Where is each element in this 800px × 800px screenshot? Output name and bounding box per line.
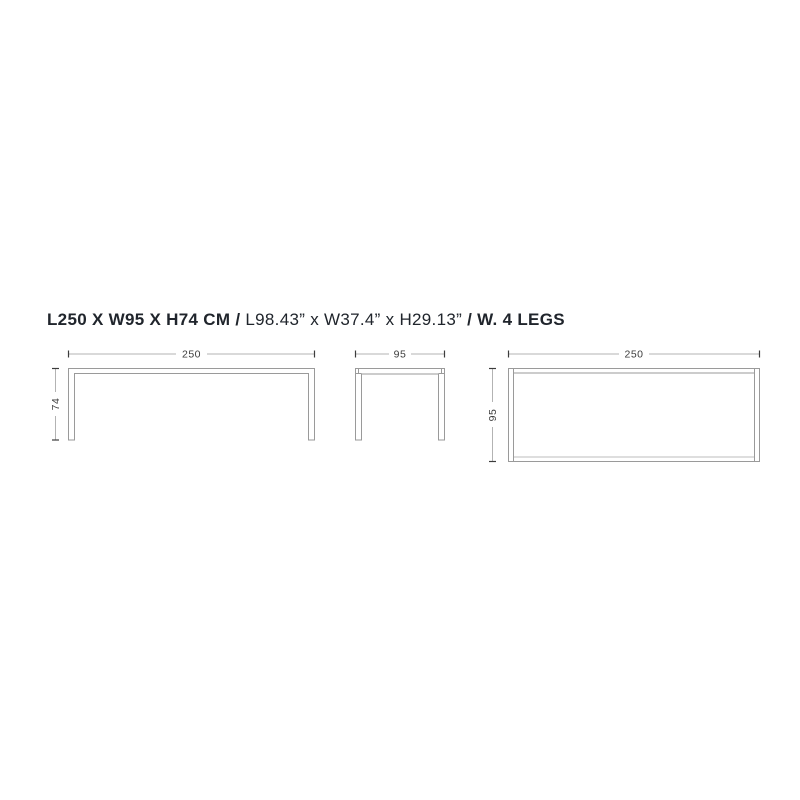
side-depth-label: 95 [394,349,407,361]
front-elevation-view: 250 74 [50,349,315,441]
front-height-dimension: 74 [50,369,62,441]
front-table-outline [69,369,315,441]
top-length-label: 250 [624,349,643,361]
top-plan-view: 250 95 [487,349,760,462]
front-height-label: 74 [50,398,62,411]
front-width-label: 250 [182,349,201,361]
top-depth-dimension: 95 [487,369,499,462]
side-depth-dimension: 95 [356,349,445,361]
top-length-dimension: 250 [509,349,760,361]
product-dimension-sheet: L250 X W95 X H74 CM / L98.43” x W37.4” x… [0,0,800,800]
side-table-outline [356,369,445,441]
front-width-dimension: 250 [69,349,315,361]
side-leg-cap-detail [356,369,445,374]
table-dimension-diagram: 250 74 95 [0,0,800,800]
top-depth-label: 95 [487,409,499,422]
top-table-outline [509,369,760,462]
side-elevation-view: 95 [356,349,445,441]
